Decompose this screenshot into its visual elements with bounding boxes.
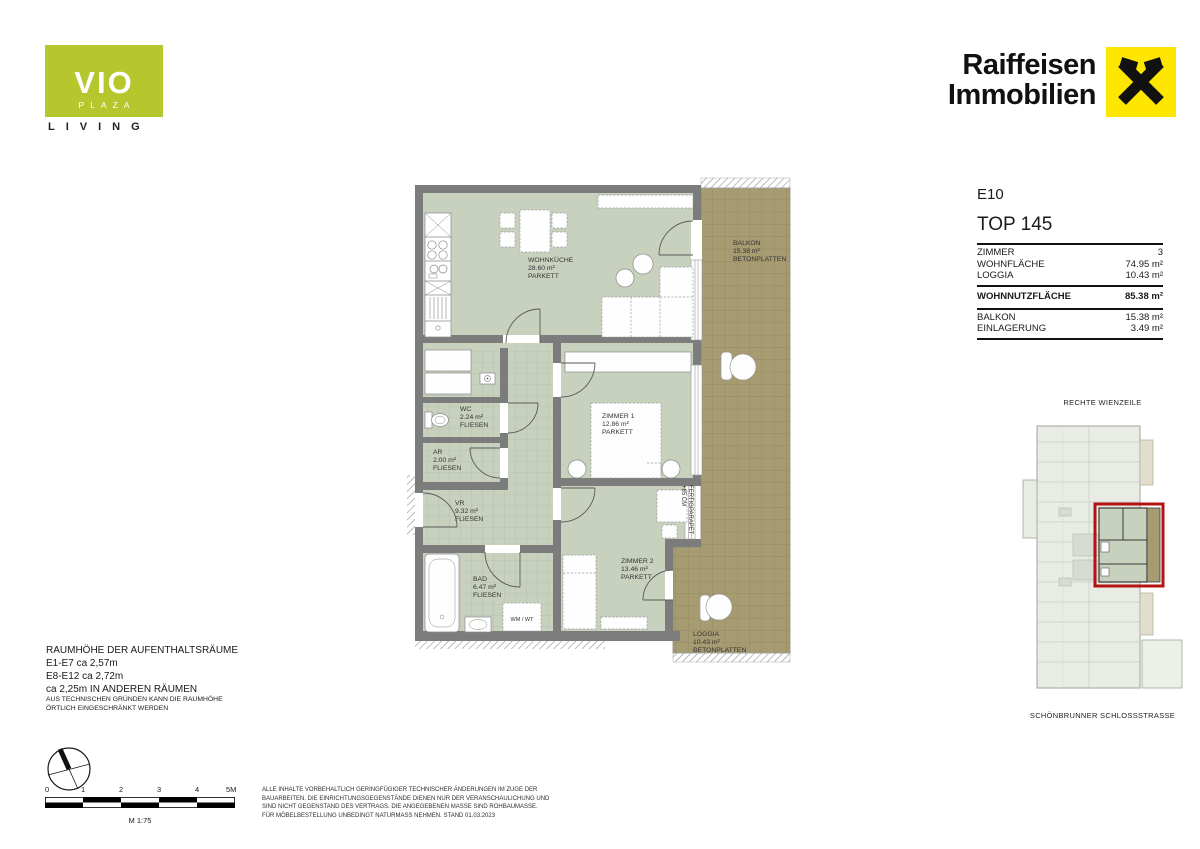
closet-icon bbox=[425, 350, 471, 371]
scale-tick: 2 bbox=[119, 785, 123, 794]
balcony-strip bbox=[1140, 593, 1153, 635]
svg-text:PARKETT: PARKETT bbox=[528, 273, 559, 280]
bathtub-icon bbox=[425, 554, 459, 632]
row-value: 3 bbox=[1158, 247, 1163, 259]
raiffeisen-gable-cross-icon bbox=[1106, 47, 1176, 117]
balcony-chair-icon bbox=[721, 352, 756, 380]
room-height-line: E8-E12 ca 2,72m bbox=[46, 670, 238, 683]
hall-door-gap bbox=[503, 335, 540, 343]
row-label: BALKON bbox=[977, 312, 1016, 324]
svg-text:28.60 m²: 28.60 m² bbox=[528, 265, 556, 272]
nightstand-icon bbox=[662, 460, 680, 478]
table-row: EINLAGERUNG 3.49 m² bbox=[977, 323, 1163, 335]
svg-text:PARKETT: PARKETT bbox=[621, 574, 652, 581]
svg-text:9.32 m²: 9.32 m² bbox=[455, 508, 479, 515]
row-value: 15.38 m² bbox=[1126, 312, 1164, 324]
raiffeisen-line1: Raiffeisen bbox=[948, 50, 1096, 80]
toilet-icon bbox=[425, 412, 449, 428]
svg-text:AR: AR bbox=[433, 449, 443, 456]
table-row: ZIMMER 3 bbox=[977, 247, 1163, 259]
svg-text:15.38 m²: 15.38 m² bbox=[733, 248, 761, 255]
disclaimer-note: ALLE INHALTE VORBEHALTLICH GERINGFÜGIGER… bbox=[262, 786, 602, 820]
row-label: EINLAGERUNG bbox=[977, 323, 1046, 335]
street-label-top: RECHTE WIENZEILE bbox=[1015, 398, 1190, 407]
svg-text:VR: VR bbox=[455, 500, 465, 507]
svg-text:BAD: BAD bbox=[473, 576, 487, 583]
svg-text:13.46 m²: 13.46 m² bbox=[621, 566, 649, 573]
scale-tick: 1 bbox=[81, 785, 85, 794]
row-label: WOHNNUTZFLÄCHE bbox=[977, 291, 1071, 303]
area-rows-main: ZIMMER 3 WOHNFLÄCHE 74.95 m² LOGGIA 10.4… bbox=[977, 245, 1163, 285]
nightstand-icon bbox=[568, 460, 586, 478]
sink-icon bbox=[465, 617, 491, 632]
svg-text:BALKON: BALKON bbox=[733, 240, 761, 247]
scale-tick: 0 bbox=[45, 785, 49, 794]
svg-text:6.47 m²: 6.47 m² bbox=[473, 584, 497, 591]
washer-label: WM / WT bbox=[511, 617, 535, 623]
bed2-icon bbox=[563, 555, 596, 629]
zimmer1-door-gap bbox=[553, 363, 561, 397]
balcony-door-gap bbox=[691, 220, 702, 260]
vio-logo-tag: LIVING bbox=[45, 121, 163, 133]
row-value: 74.95 m² bbox=[1126, 259, 1164, 271]
disclaimer-line: BAUARBEITEN. DIE EINRICHTUNGSGEGENSTÄNDE… bbox=[262, 795, 602, 804]
sideboard-icon bbox=[598, 195, 693, 208]
annex-block bbox=[1142, 640, 1182, 688]
kitchen-counter-icon bbox=[425, 213, 451, 337]
zimmer2-door-gap bbox=[553, 488, 561, 520]
disclaimer-line: FÜR MÖBELBESTELLUNG UNBEDINGT NATURMASS … bbox=[262, 812, 602, 821]
room-height-title: RAUMHÖHE DER AUFENTHALTSRÄUME bbox=[46, 644, 238, 657]
scale-tick: 5M bbox=[226, 785, 236, 794]
raiffeisen-line2: Immobilien bbox=[948, 80, 1096, 110]
scale-caption: M 1:75 bbox=[45, 816, 235, 825]
coffee-table-icon bbox=[633, 254, 653, 274]
row-label: LOGGIA bbox=[977, 270, 1013, 282]
area-table: ZIMMER 3 WOHNFLÄCHE 74.95 m² LOGGIA 10.4… bbox=[977, 243, 1163, 340]
vio-logo-sub: PLAZA bbox=[73, 100, 136, 110]
svg-text:LOGGIA: LOGGIA bbox=[693, 631, 720, 638]
lowboard-icon bbox=[601, 617, 647, 629]
unit-info-panel: E10 TOP 145 ZIMMER 3 WOHNFLÄCHE 74.95 m²… bbox=[977, 186, 1163, 340]
wardrobe-icon bbox=[565, 352, 691, 372]
bad-door-gap bbox=[485, 545, 520, 553]
svg-text:ZIMMER 2: ZIMMER 2 bbox=[621, 558, 654, 565]
svg-text:FLIESEN: FLIESEN bbox=[460, 422, 488, 429]
disclaimer-line: ALLE INHALTE VORBEHALTLICH GERINGFÜGIGER… bbox=[262, 786, 602, 795]
site-plan-map bbox=[1015, 418, 1190, 696]
svg-text:10.43 m²: 10.43 m² bbox=[693, 639, 721, 646]
svg-text:WC: WC bbox=[460, 406, 471, 413]
room-height-small: AUS TECHNISCHEN GRÜNDEN KANN DIE RAUMHÖH… bbox=[46, 696, 238, 705]
scale-bar: 0 1 2 3 4 5M M 1:75 bbox=[45, 785, 235, 825]
site-plan: RECHTE WIENZEILE SCHÖNBRUNNER SCHLOSSSTR… bbox=[1015, 398, 1190, 720]
room-height-note: RAUMHÖHE DER AUFENTHALTSRÄUME E1-E7 ca 2… bbox=[46, 644, 238, 713]
coffee-table-icon bbox=[616, 269, 634, 287]
row-value: 3.49 m² bbox=[1131, 323, 1163, 335]
parapet-hatch-top bbox=[701, 178, 790, 188]
zimmer1-window bbox=[691, 365, 702, 475]
svg-text:BETONPLATTEN: BETONPLATTEN bbox=[693, 647, 746, 654]
room-height-line: E1-E7 ca 2,57m bbox=[46, 657, 238, 670]
area-rows-extra: BALKON 15.38 m² EINLAGERUNG 3.49 m² bbox=[977, 310, 1163, 338]
scale-ticks: 0 1 2 3 4 5M bbox=[45, 785, 235, 795]
vent-icon bbox=[480, 373, 495, 384]
svg-text:12.86 m²: 12.86 m² bbox=[602, 421, 630, 428]
table-row: WOHNFLÄCHE 74.95 m² bbox=[977, 259, 1163, 271]
room-height-small: ÖRTLICH EINGESCHRÄNKT WERDEN bbox=[46, 705, 238, 714]
exterior-hatch-left bbox=[407, 475, 415, 535]
highlighted-unit bbox=[1095, 504, 1163, 586]
svg-text:2.00 m²: 2.00 m² bbox=[433, 457, 457, 464]
row-value: 10.43 m² bbox=[1126, 270, 1164, 282]
exterior-hatch-bottom bbox=[415, 641, 605, 649]
street-label-bottom: SCHÖNBRUNNER SCHLOSSSTRASSE bbox=[1015, 711, 1190, 720]
loggia-chair-icon bbox=[700, 594, 732, 621]
floor-plan: WOHNKÜCHE 28.60 m² PARKETT BALKON 15.38 … bbox=[405, 175, 805, 675]
row-label: WOHNFLÄCHE bbox=[977, 259, 1045, 271]
svg-text:BETONPLATTEN: BETONPLATTEN bbox=[733, 256, 786, 263]
room-height-line: ca 2,25m IN ANDEREN RÄUMEN bbox=[46, 683, 238, 696]
scale-tick: 3 bbox=[157, 785, 161, 794]
row-label: ZIMMER bbox=[977, 247, 1014, 259]
unit-floor-label: E10 bbox=[977, 186, 1163, 203]
vio-plaza-logo: VIO PLAZA LIVING bbox=[45, 45, 163, 133]
entrance-door-gap bbox=[415, 493, 423, 527]
svg-text:2.24 m²: 2.24 m² bbox=[460, 414, 484, 421]
vio-logo-box: VIO PLAZA bbox=[45, 45, 163, 117]
raiffeisen-logo-text: Raiffeisen Immobilien bbox=[948, 50, 1096, 110]
balcony-strip bbox=[1140, 440, 1153, 485]
ar-door-gap bbox=[500, 448, 508, 478]
row-value: 85.38 m² bbox=[1125, 291, 1163, 303]
svg-text:FLIESEN: FLIESEN bbox=[433, 465, 461, 472]
svg-text:ZIMMER 1: ZIMMER 1 bbox=[602, 413, 635, 420]
svg-text:FLIESEN: FLIESEN bbox=[473, 592, 501, 599]
table-row-total: WOHNNUTZFLÄCHE 85.38 m² bbox=[977, 289, 1163, 305]
loggia-door-gap bbox=[665, 570, 673, 600]
closet-icon bbox=[425, 373, 471, 394]
table-row: LOGGIA 10.43 m² bbox=[977, 270, 1163, 282]
svg-text:PARKETT: PARKETT bbox=[602, 429, 633, 436]
wc-door-gap bbox=[500, 403, 508, 433]
parapet-hatch-bottom bbox=[673, 653, 790, 662]
vio-logo-name: VIO bbox=[74, 68, 133, 98]
scale-tick: 4 bbox=[195, 785, 199, 794]
svg-text:WOHNKÜCHE: WOHNKÜCHE bbox=[528, 256, 574, 264]
table-row: BALKON 15.38 m² bbox=[977, 312, 1163, 324]
area-total-block: WOHNNUTZFLÄCHE 85.38 m² bbox=[977, 285, 1163, 310]
unit-top-number: TOP 145 bbox=[977, 214, 1163, 236]
scale-bar-graphic bbox=[45, 797, 235, 808]
disclaimer-line: SIND NICHT GEGENSTAND DES VERTRAGS. DIE … bbox=[262, 803, 602, 812]
svg-text:FLIESEN: FLIESEN bbox=[455, 516, 483, 523]
